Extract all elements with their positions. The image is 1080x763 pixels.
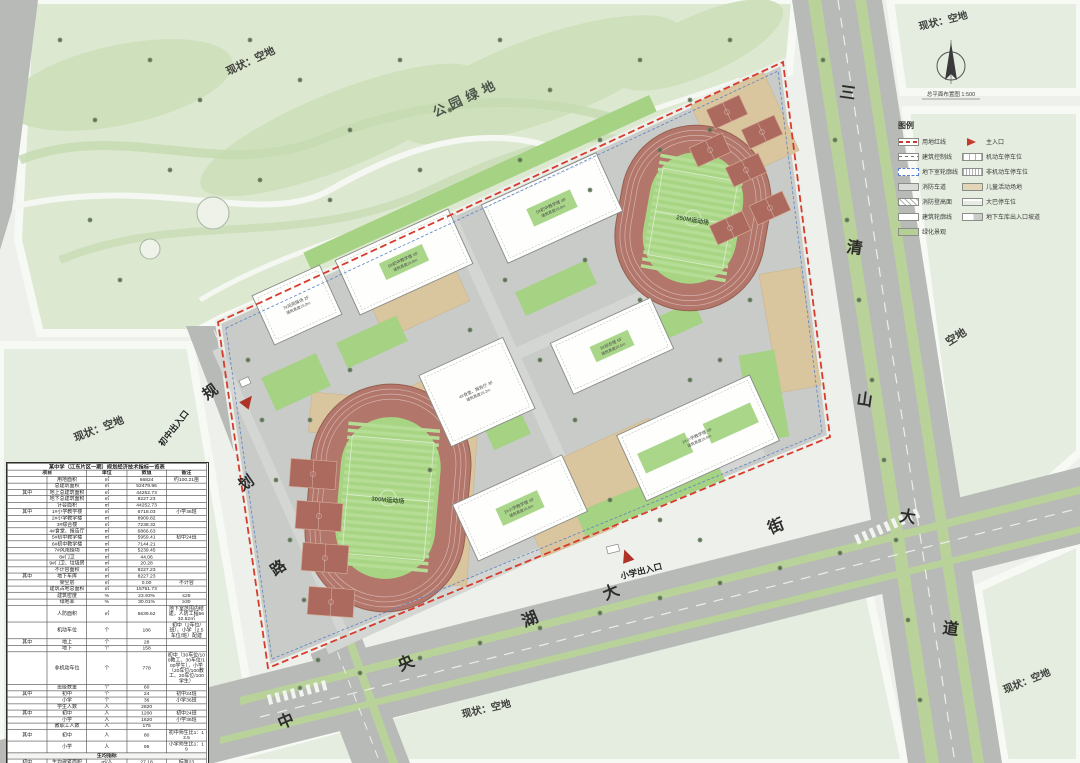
tree-center <box>659 149 661 151</box>
ramp-box-icon <box>962 213 983 221</box>
table-cell: 个 <box>87 622 127 639</box>
legend-item: 非机动车停车位 <box>962 164 1040 179</box>
tree-center <box>883 459 885 461</box>
basketball-court <box>307 586 355 617</box>
tree-center <box>261 419 263 421</box>
basketball-court <box>301 542 349 573</box>
table-cell: 5639.62 <box>127 605 167 622</box>
legend-item: 机动车停车位 <box>962 149 1040 164</box>
table-row: 初中生均建筑面积㎡/人27.18标准23 <box>7 759 206 763</box>
legend-item: 建筑控制线 <box>898 149 958 164</box>
table-cell: 某中学（江东片区一期）规划经济技术指标一览表 <box>7 463 206 470</box>
legend-item-label: 儿童活动场地 <box>986 182 1022 191</box>
tree-center <box>259 179 261 181</box>
tree-center <box>419 169 421 171</box>
legend-left-column: 用地红线建筑控制线地下室轮廓线消防车道消防登高面建筑轮廓线绿化景观 <box>898 134 958 239</box>
table-cell: 1#小学教学楼 <box>47 509 87 515</box>
parcel-northeast <box>890 0 1080 92</box>
table-cell: 初中 <box>47 729 87 741</box>
table-cell <box>7 741 47 753</box>
tree-center <box>719 582 721 584</box>
bus-box-icon <box>962 198 983 206</box>
tree-center <box>89 219 91 221</box>
legend-item: 儿童活动场地 <box>962 179 1040 194</box>
legend-item: 地下车库出入口坡道 <box>962 209 1040 224</box>
tree-center <box>289 539 291 541</box>
tree-center <box>247 359 249 361</box>
tree-center <box>584 259 586 261</box>
table-cell: ㎡ <box>87 605 127 622</box>
tree-center <box>519 159 521 161</box>
table-row: 其中初中人80初中师生比1：13.5 <box>7 729 206 741</box>
tree-center <box>275 479 277 481</box>
table-cell: ㎡/人 <box>87 759 127 763</box>
legend-item-label: 机动车停车位 <box>986 152 1022 161</box>
legend-item: 主入口 <box>962 134 1040 149</box>
table-cell: 9#门卫、垃圾房 <box>47 560 87 566</box>
table-row: 人防面积㎡5639.62地下室范围内结建，人防工程5632.52㎡ <box>7 605 206 622</box>
tree-center <box>359 672 361 674</box>
road-box-icon <box>898 183 919 191</box>
tree-center <box>469 329 471 331</box>
tree-center <box>699 539 701 541</box>
legend-item-label: 非机动车停车位 <box>986 167 1028 176</box>
table-cell: 建筑占地总面积 <box>47 586 87 592</box>
table-cell: 27.18 <box>127 759 167 763</box>
table-cell: 人防面积 <box>47 605 87 622</box>
table-cell: 95 <box>127 741 167 753</box>
legend-item-label: 建筑控制线 <box>922 152 952 161</box>
tree-center <box>539 359 541 361</box>
tree-center <box>349 129 351 131</box>
tree-center <box>399 59 401 61</box>
blue-dashed-box-icon <box>898 168 919 176</box>
tree-center <box>199 99 201 101</box>
red-dashed-line-icon <box>898 138 919 146</box>
tree-center <box>749 299 751 301</box>
entry-triangle-icon <box>962 138 983 146</box>
legend-item: 消防车道 <box>898 179 958 194</box>
legend-item-label: 地下室轮廓线 <box>922 167 958 176</box>
tree-center <box>539 627 541 629</box>
legend-item: 用地红线 <box>898 134 958 149</box>
legend-item-label: 用地红线 <box>922 137 946 146</box>
tree-center <box>309 419 311 421</box>
solid-box-icon <box>898 213 919 221</box>
tree-center <box>907 619 909 621</box>
tree-center <box>689 99 691 101</box>
tree-center <box>249 39 251 41</box>
indicator-table: 某中学（江东片区一期）规划经济技术指标一览表项目单位数值备注用地面积㎡66824… <box>7 463 207 763</box>
legend-item: 建筑轮廓线 <box>898 209 958 224</box>
tree-center <box>429 469 431 471</box>
table-cell: 地下室范围内结建，人防工程5632.52㎡ <box>166 605 206 622</box>
tree-center <box>639 299 641 301</box>
table-cell: 其中 <box>7 729 47 741</box>
tree-center <box>858 299 860 301</box>
legend-item-label: 消防车道 <box>922 182 946 191</box>
tree-center <box>169 169 171 171</box>
table-cell: 地上总建筑面积 <box>47 489 87 495</box>
table-cell <box>7 652 47 684</box>
table-cell: 186 <box>127 622 167 639</box>
legend-item-label: 主入口 <box>986 137 1004 146</box>
tree-center <box>149 59 151 61</box>
table-cell <box>7 605 47 622</box>
table-row: 机动车位个186初中（2车位/班）、小学（2.5车位/班）配建 <box>7 622 206 639</box>
tree-center <box>299 79 301 81</box>
hatch-box-icon <box>898 198 919 206</box>
table-cell: 初中（2车位/班）、小学（2.5车位/班）配建 <box>166 622 206 639</box>
tree-center <box>689 379 691 381</box>
table-cell: 非机动车位 <box>47 652 87 684</box>
tree-center <box>659 597 661 599</box>
table-row: 非机动车位个778初中（30车位/100教工、30车位/100学生），小学（20… <box>7 652 206 684</box>
tree-center <box>589 189 591 191</box>
table-cell: 标准23 <box>166 759 206 763</box>
tree-center <box>303 599 305 601</box>
table-cell: 个 <box>87 652 127 684</box>
basketball-court <box>289 458 337 489</box>
tree-center <box>871 379 873 381</box>
tree-center <box>779 567 781 569</box>
tree-center <box>639 59 641 61</box>
tree-center <box>599 139 601 141</box>
tree-center <box>919 699 921 701</box>
tree-center <box>349 369 351 371</box>
legend-item: 绿化景观 <box>898 224 958 239</box>
legend-item: 消防登高面 <box>898 194 958 209</box>
legend-item-label: 消防登高面 <box>922 197 952 206</box>
legend-right-column: 主入口机动车停车位非机动车停车位儿童活动场地大巴停车位地下车库出入口坡道 <box>962 134 1040 239</box>
legend-item: 大巴停车位 <box>962 194 1040 209</box>
table-cell: 小学 <box>47 741 87 753</box>
tree-center <box>499 39 501 41</box>
tree-center <box>574 419 576 421</box>
table-cell: 5#初中教学楼 <box>47 535 87 541</box>
table-row: 小学人95小学师生比1：19 <box>7 741 206 753</box>
economic-indicator-table: 某中学（江东片区一期）规划经济技术指标一览表项目单位数值备注用地面积㎡66824… <box>6 462 209 763</box>
table-cell: 人 <box>87 729 127 741</box>
table-cell: 人 <box>87 741 127 753</box>
tree-center <box>822 59 824 61</box>
legend-item-label: 地下车库出入口坡道 <box>986 212 1040 221</box>
legend-item-label: 建筑轮廓线 <box>922 212 952 221</box>
table-cell <box>7 622 47 639</box>
tree-center <box>549 89 551 91</box>
bike-box-icon <box>962 168 983 176</box>
tree-center <box>479 642 481 644</box>
road-name-char: 道 <box>942 618 961 639</box>
table-title-row: 某中学（江东片区一期）规划经济技术指标一览表 <box>7 463 206 470</box>
road-name-char: 清 <box>846 238 864 258</box>
legend-item: 地下室轮廓线 <box>898 164 958 179</box>
table-cell: 6#初中教学楼 <box>47 541 87 547</box>
tree-center <box>709 129 711 131</box>
table-cell: 4#食堂、报告厅 <box>47 528 87 534</box>
tree-center <box>729 39 731 41</box>
road-name-char: 三 <box>839 84 857 103</box>
table-cell: 小学师生比1：19 <box>166 741 206 753</box>
tree-center <box>659 519 661 521</box>
site-plan-canvas: 250M运动场300M运动场 6#初中教学楼 4F建筑高度16.8m5#初中教学… <box>0 0 1080 763</box>
tree-center <box>609 499 611 501</box>
tree-center <box>419 657 421 659</box>
tree-center <box>839 552 841 554</box>
road-name-char: 大 <box>899 506 918 527</box>
table-cell: 生均建筑面积 <box>47 759 87 763</box>
table-cell: 初中 <box>7 759 47 763</box>
table-cell: 80 <box>127 729 167 741</box>
legend-item-label: 大巴停车位 <box>986 197 1016 206</box>
table-cell: 778 <box>127 652 167 684</box>
tree-center <box>846 219 848 221</box>
road-name-char: 山 <box>856 390 874 410</box>
tree-center <box>895 539 897 541</box>
table-cell: 机动车位 <box>47 622 87 639</box>
legend-title: 图例 <box>898 120 1078 131</box>
tree-center <box>119 279 121 281</box>
park-plaza-small <box>140 239 160 259</box>
table-cell: 初中师生比1：13.5 <box>166 729 206 741</box>
parking-box-icon <box>962 153 983 161</box>
play-box-icon <box>962 183 983 191</box>
tree-center <box>719 359 721 361</box>
tree-center <box>317 659 319 661</box>
tree-center <box>299 687 301 689</box>
tree-center <box>504 279 506 281</box>
tree-center <box>94 119 96 121</box>
tree-center <box>834 139 836 141</box>
tree-center <box>59 39 61 41</box>
gray-dashed-line-icon <box>898 153 919 161</box>
tree-center <box>329 199 331 201</box>
legend: 图例 用地红线建筑控制线地下室轮廓线消防车道消防登高面建筑轮廓线绿化景观 主入口… <box>898 120 1078 239</box>
park-plaza-large <box>197 197 229 229</box>
table-cell: 初中（30车位/100教工、30车位/100学生），小学（20车位/100教工、… <box>166 652 206 684</box>
table-cell: 地下总建筑面积 <box>47 496 87 502</box>
basketball-court <box>295 500 343 531</box>
tree-center <box>599 612 601 614</box>
green-box-icon <box>898 228 919 236</box>
table-cell: 2#小学教学楼 <box>47 515 87 521</box>
legend-item-label: 绿化景观 <box>922 227 946 236</box>
drawing-caption: 总平面布置图 1:500 <box>927 90 975 98</box>
